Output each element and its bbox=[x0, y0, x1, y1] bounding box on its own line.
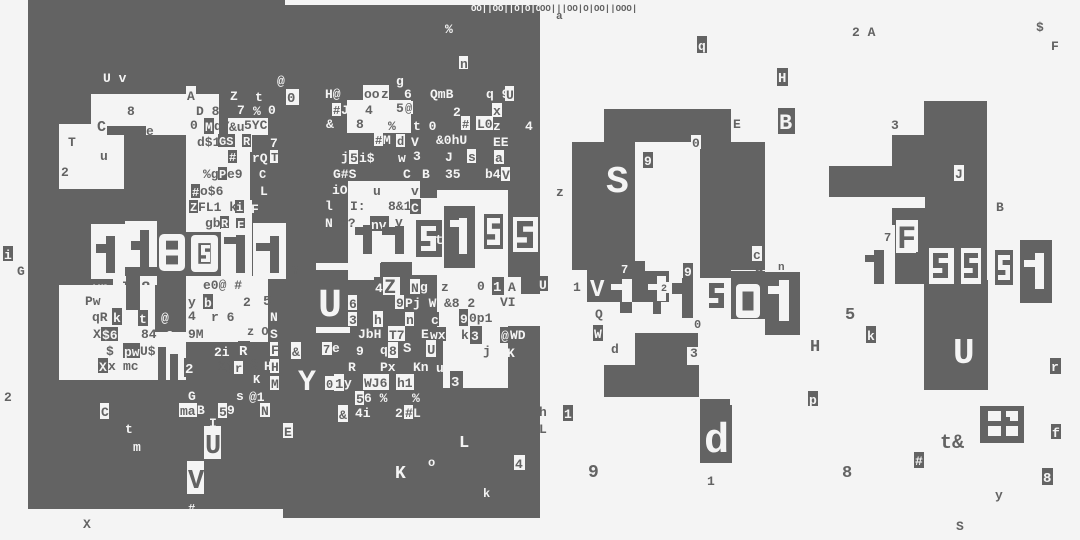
svg-text:1: 1 bbox=[707, 474, 715, 489]
svg-text:9: 9 bbox=[460, 312, 468, 327]
svg-text:B: B bbox=[996, 200, 1004, 215]
svg-text:H: H bbox=[810, 338, 820, 357]
svg-text:7: 7 bbox=[270, 136, 278, 151]
svg-text:f: f bbox=[250, 343, 258, 358]
svg-text:5: 5 bbox=[350, 151, 358, 166]
svg-text:x: x bbox=[493, 104, 501, 119]
svg-text:#: # bbox=[229, 151, 236, 165]
svg-text:H: H bbox=[778, 71, 786, 87]
svg-text:8: 8 bbox=[356, 117, 364, 132]
svg-text:9: 9 bbox=[356, 344, 364, 359]
svg-text:4: 4 bbox=[375, 281, 383, 296]
svg-text:U: U bbox=[427, 343, 435, 359]
svg-text:L: L bbox=[260, 184, 268, 199]
svg-text:v: v bbox=[411, 184, 419, 199]
svg-text:T: T bbox=[68, 135, 76, 150]
svg-text:%: % bbox=[412, 391, 420, 406]
svg-text:FL1 k: FL1 k bbox=[198, 200, 237, 215]
svg-text:@: @ bbox=[501, 329, 509, 344]
svg-text:0: 0 bbox=[190, 118, 198, 133]
svg-text:Kn: Kn bbox=[413, 360, 429, 375]
svg-text:h1: h1 bbox=[397, 376, 413, 391]
svg-text:Y: Y bbox=[298, 366, 316, 400]
svg-text:JbH: JbH bbox=[358, 327, 381, 342]
svg-text:4: 4 bbox=[515, 457, 523, 472]
svg-text:a?: a? bbox=[340, 216, 356, 231]
svg-text:5: 5 bbox=[263, 294, 271, 310]
svg-text:E: E bbox=[733, 117, 741, 132]
svg-text:8: 8 bbox=[389, 344, 397, 359]
svg-text:U: U bbox=[953, 333, 975, 374]
svg-text:&: & bbox=[292, 345, 300, 360]
svg-text:VI: VI bbox=[500, 295, 516, 310]
svg-text:S: S bbox=[270, 327, 278, 342]
svg-text:9: 9 bbox=[644, 154, 652, 169]
svg-text:2: 2 bbox=[243, 295, 251, 310]
svg-text:a: a bbox=[556, 11, 563, 23]
svg-text:@1: @1 bbox=[249, 390, 265, 405]
svg-text:&u: &u bbox=[229, 120, 245, 135]
svg-text:h: h bbox=[374, 313, 382, 328]
svg-text:oo: oo bbox=[364, 87, 380, 102]
svg-text:1: 1 bbox=[335, 377, 343, 393]
svg-text:4: 4 bbox=[525, 119, 533, 134]
svg-text:s: s bbox=[468, 150, 476, 165]
svg-text:9M: 9M bbox=[188, 327, 204, 342]
svg-text:Y: Y bbox=[292, 263, 300, 278]
svg-text:rQ: rQ bbox=[252, 151, 268, 166]
svg-text:h: h bbox=[539, 405, 547, 420]
svg-text:V: V bbox=[590, 277, 605, 304]
svg-text:Q: Q bbox=[595, 307, 603, 322]
svg-text:j: j bbox=[483, 344, 491, 359]
svg-text:z: z bbox=[381, 87, 389, 102]
svg-text:i: i bbox=[4, 248, 12, 263]
svg-text:3: 3 bbox=[451, 375, 459, 391]
svg-text:0p1: 0p1 bbox=[469, 311, 493, 326]
svg-text:E: E bbox=[421, 327, 429, 342]
svg-text:G#S: G#S bbox=[333, 167, 357, 182]
svg-text:3: 3 bbox=[471, 329, 479, 344]
svg-text:M: M bbox=[271, 377, 279, 392]
svg-text:N: N bbox=[325, 216, 333, 231]
svg-text:l: l bbox=[325, 199, 333, 214]
svg-text:U: U bbox=[539, 278, 547, 293]
svg-text:8: 8 bbox=[1043, 471, 1051, 487]
svg-text:W: W bbox=[594, 327, 602, 342]
svg-text:#: # bbox=[915, 454, 923, 469]
svg-text:V: V bbox=[502, 168, 510, 183]
svg-text:OO|||OO|O|OO||OOO|: OO|||OO|O|OO||OOO| bbox=[540, 4, 637, 14]
svg-text:r 6: r 6 bbox=[211, 310, 235, 325]
svg-text:J: J bbox=[445, 150, 453, 165]
svg-text:#: # bbox=[333, 104, 340, 118]
svg-text:N: N bbox=[411, 281, 419, 296]
svg-text:E: E bbox=[284, 425, 292, 440]
svg-text:U: U bbox=[205, 432, 221, 462]
svg-text:w: w bbox=[756, 263, 764, 277]
svg-text:%g: %g bbox=[203, 167, 219, 182]
svg-text:w: w bbox=[398, 151, 406, 166]
svg-text:#: # bbox=[188, 502, 195, 516]
svg-text:2: 2 bbox=[185, 362, 193, 378]
svg-text:pw: pw bbox=[124, 345, 140, 360]
svg-text:9: 9 bbox=[227, 403, 235, 418]
svg-text:6 %: 6 % bbox=[364, 391, 388, 406]
svg-text:5YC: 5YC bbox=[244, 118, 268, 133]
svg-text:a: a bbox=[495, 151, 503, 166]
svg-text:i$: i$ bbox=[359, 151, 375, 166]
svg-text:g: g bbox=[396, 74, 404, 89]
svg-text:X: X bbox=[83, 517, 91, 532]
svg-text:C: C bbox=[259, 168, 266, 182]
svg-text:R: R bbox=[348, 360, 356, 375]
svg-text:5: 5 bbox=[356, 392, 364, 407]
svg-text:%j: %j bbox=[218, 359, 234, 374]
svg-text:K: K bbox=[253, 373, 261, 387]
svg-text:S: S bbox=[606, 161, 629, 204]
svg-text:L: L bbox=[459, 434, 469, 453]
svg-text:S: S bbox=[956, 519, 964, 534]
svg-text:u: u bbox=[436, 361, 444, 376]
svg-text:2: 2 bbox=[61, 165, 69, 180]
svg-text:6: 6 bbox=[349, 297, 357, 312]
svg-text:V: V bbox=[411, 135, 419, 150]
svg-text:&: & bbox=[326, 117, 334, 132]
svg-text:M: M bbox=[383, 133, 391, 148]
svg-text:7: 7 bbox=[323, 343, 330, 357]
svg-text:k: k bbox=[461, 328, 469, 343]
svg-text:U v: U v bbox=[103, 71, 127, 86]
svg-text:8&1: 8&1 bbox=[388, 199, 412, 214]
svg-text:2i: 2i bbox=[214, 345, 230, 360]
svg-text:F: F bbox=[897, 221, 916, 258]
svg-text:84: 84 bbox=[141, 327, 157, 342]
svg-text:WJ6: WJ6 bbox=[364, 376, 388, 391]
svg-text:t 0: t 0 bbox=[413, 119, 437, 134]
svg-text:j W: j W bbox=[413, 296, 437, 311]
svg-text:QmB: QmB bbox=[430, 87, 454, 102]
svg-text:7: 7 bbox=[884, 231, 891, 245]
svg-text:9: 9 bbox=[588, 463, 599, 483]
svg-text:5: 5 bbox=[845, 306, 855, 325]
svg-text:e: e bbox=[146, 124, 154, 139]
svg-text:p: p bbox=[809, 393, 817, 408]
svg-text:T: T bbox=[271, 151, 278, 165]
svg-text:Z: Z bbox=[190, 201, 197, 215]
svg-text:mc: mc bbox=[123, 359, 139, 374]
svg-text:U$: U$ bbox=[140, 344, 156, 359]
svg-text:#: # bbox=[462, 118, 469, 132]
svg-text:0: 0 bbox=[326, 378, 333, 392]
svg-text:qR: qR bbox=[92, 310, 108, 325]
svg-text:n: n bbox=[460, 57, 468, 72]
svg-text:K: K bbox=[395, 464, 406, 484]
svg-text:%: % bbox=[388, 119, 396, 134]
svg-text:D 8: D 8 bbox=[196, 104, 220, 119]
svg-text:t&: t& bbox=[940, 432, 964, 455]
svg-text:r: r bbox=[235, 362, 242, 376]
svg-text:&0hU: &0hU bbox=[436, 133, 467, 148]
svg-text:F: F bbox=[1051, 39, 1059, 54]
svg-text:X: X bbox=[99, 360, 107, 375]
svg-text:q: q bbox=[380, 343, 388, 358]
svg-text:OO||OO||O|O|OO: OO||OO||O|O|OO bbox=[471, 4, 547, 14]
svg-text:gb: gb bbox=[205, 216, 221, 231]
svg-text:k: k bbox=[867, 329, 875, 344]
svg-text:5: 5 bbox=[219, 405, 227, 420]
svg-text:0: 0 bbox=[287, 91, 295, 107]
svg-text:8: 8 bbox=[842, 464, 852, 483]
svg-text:L: L bbox=[539, 422, 547, 437]
svg-text:2 A: 2 A bbox=[852, 25, 876, 40]
svg-text:P: P bbox=[219, 168, 226, 182]
svg-text:m: m bbox=[133, 440, 141, 455]
svg-text:M: M bbox=[205, 120, 213, 135]
svg-text:@: @ bbox=[277, 74, 285, 89]
svg-text:ma: ma bbox=[180, 404, 196, 419]
svg-text:B: B bbox=[779, 111, 792, 136]
svg-text:0: 0 bbox=[477, 279, 485, 294]
svg-text:z: z bbox=[493, 119, 501, 134]
svg-text:J: J bbox=[341, 103, 349, 118]
svg-text:A: A bbox=[508, 280, 516, 295]
svg-text:u: u bbox=[100, 149, 108, 164]
svg-text:J: J bbox=[955, 167, 963, 182]
svg-text:3: 3 bbox=[891, 118, 899, 133]
svg-text:C: C bbox=[101, 405, 109, 420]
svg-text:WD: WD bbox=[510, 328, 526, 343]
svg-text:0: 0 bbox=[694, 318, 701, 332]
svg-text:dY: dY bbox=[214, 119, 230, 134]
svg-text:%: % bbox=[445, 22, 453, 37]
svg-text:#: # bbox=[405, 406, 413, 421]
svg-text:$6: $6 bbox=[102, 328, 118, 343]
svg-text:o: o bbox=[428, 456, 435, 470]
svg-text:U: U bbox=[506, 88, 514, 103]
svg-text:N: N bbox=[261, 404, 269, 419]
svg-text:d: d bbox=[704, 417, 729, 465]
svg-text:n: n bbox=[406, 313, 414, 328]
svg-text:r: r bbox=[1051, 360, 1059, 375]
svg-text:Z: Z bbox=[384, 277, 396, 300]
svg-text:K: K bbox=[507, 346, 515, 361]
svg-text:3: 3 bbox=[413, 149, 421, 164]
svg-text:G: G bbox=[17, 264, 25, 279]
svg-text:0: 0 bbox=[268, 103, 276, 118]
svg-text:b: b bbox=[204, 296, 212, 311]
svg-text:2: 2 bbox=[661, 284, 667, 295]
svg-text:f: f bbox=[1052, 426, 1060, 441]
svg-text:e: e bbox=[332, 341, 340, 356]
svg-text:4: 4 bbox=[365, 103, 373, 118]
svg-text:Z: Z bbox=[230, 89, 238, 104]
svg-text:3: 3 bbox=[349, 313, 357, 328]
svg-text:o$6: o$6 bbox=[200, 184, 224, 199]
svg-text:k: k bbox=[483, 487, 490, 501]
svg-text:F: F bbox=[251, 202, 259, 217]
svg-text:y: y bbox=[995, 488, 1003, 503]
svg-text:8: 8 bbox=[127, 104, 135, 119]
svg-text:GS: GS bbox=[219, 135, 233, 149]
svg-text:V: V bbox=[188, 467, 205, 497]
svg-text:7: 7 bbox=[621, 263, 628, 277]
svg-text:t: t bbox=[139, 312, 147, 327]
svg-text:EE: EE bbox=[493, 135, 509, 150]
svg-text:q: q bbox=[698, 39, 706, 54]
svg-text:@: @ bbox=[161, 311, 169, 326]
svg-text:i: i bbox=[236, 201, 243, 215]
svg-text:g: g bbox=[420, 280, 428, 295]
svg-text:S: S bbox=[403, 341, 411, 357]
svg-text:4: 4 bbox=[188, 309, 196, 324]
svg-text:k: k bbox=[113, 311, 121, 326]
svg-text:$: $ bbox=[106, 344, 114, 359]
svg-text:&8 2: &8 2 bbox=[444, 296, 475, 311]
svg-text:9: 9 bbox=[396, 296, 404, 311]
svg-text:t: t bbox=[255, 90, 263, 105]
svg-text:z: z bbox=[441, 280, 449, 295]
svg-text:3: 3 bbox=[690, 346, 698, 361]
svg-text:H@: H@ bbox=[325, 87, 341, 102]
svg-text:H: H bbox=[271, 360, 279, 375]
svg-text:0: 0 bbox=[692, 136, 700, 151]
svg-text:j: j bbox=[341, 150, 349, 165]
svg-text:&: & bbox=[339, 408, 347, 423]
svg-text:$: $ bbox=[1036, 20, 1044, 35]
svg-text:a: a bbox=[166, 327, 174, 342]
svg-text:y: y bbox=[344, 376, 352, 391]
svg-text:1: 1 bbox=[493, 280, 501, 296]
svg-text:#: # bbox=[375, 134, 382, 148]
svg-text:7: 7 bbox=[237, 103, 245, 118]
svg-text:t: t bbox=[125, 422, 133, 437]
svg-text:%: % bbox=[253, 104, 261, 119]
svg-text:2: 2 bbox=[453, 105, 461, 120]
svg-text:d: d bbox=[611, 342, 619, 357]
svg-text:y: y bbox=[188, 295, 196, 310]
svg-text:L: L bbox=[413, 406, 421, 421]
svg-text:9: 9 bbox=[684, 265, 692, 280]
svg-text:s: s bbox=[236, 389, 244, 404]
svg-text:Px: Px bbox=[380, 360, 396, 375]
svg-text:e0@ #: e0@ # bbox=[203, 278, 242, 293]
svg-text:B: B bbox=[422, 167, 430, 182]
svg-text:N: N bbox=[270, 310, 278, 325]
svg-text:B: B bbox=[197, 403, 205, 418]
svg-text:A: A bbox=[187, 89, 195, 104]
svg-text:C: C bbox=[411, 201, 419, 216]
svg-text:b4: b4 bbox=[485, 167, 501, 182]
svg-text:X: X bbox=[93, 327, 101, 342]
svg-text:t: t bbox=[435, 233, 443, 249]
svg-text:x: x bbox=[108, 359, 116, 374]
svg-text:2: 2 bbox=[4, 390, 12, 405]
svg-text:#: # bbox=[192, 186, 199, 200]
svg-text:R: R bbox=[243, 135, 251, 149]
svg-text:d: d bbox=[397, 135, 404, 149]
svg-text:1: 1 bbox=[573, 280, 581, 295]
svg-text:n: n bbox=[778, 262, 785, 274]
svg-text:@: @ bbox=[405, 102, 412, 116]
svg-text:5: 5 bbox=[396, 101, 404, 116]
svg-text:G: G bbox=[188, 389, 196, 404]
svg-text:35: 35 bbox=[445, 167, 461, 182]
svg-text:2: 2 bbox=[395, 406, 403, 421]
svg-text:c: c bbox=[753, 248, 761, 263]
svg-text:R: R bbox=[239, 344, 248, 360]
svg-text:z: z bbox=[556, 185, 564, 200]
svg-text:Pw: Pw bbox=[85, 294, 101, 309]
svg-text:C: C bbox=[403, 167, 411, 182]
svg-text:F: F bbox=[271, 343, 279, 358]
svg-text:d$1: d$1 bbox=[197, 135, 221, 150]
svg-text:U: U bbox=[318, 284, 342, 329]
svg-text:u: u bbox=[373, 184, 381, 199]
svg-text:e9: e9 bbox=[227, 167, 243, 182]
svg-text:P: P bbox=[405, 296, 413, 311]
svg-text:1: 1 bbox=[564, 407, 572, 422]
svg-text:I:: I: bbox=[350, 199, 366, 214]
svg-text:6: 6 bbox=[404, 87, 412, 102]
svg-text:4i: 4i bbox=[355, 406, 371, 421]
svg-text:c: c bbox=[431, 313, 439, 328]
svg-text:C: C bbox=[97, 119, 106, 136]
svg-text:iO: iO bbox=[332, 183, 348, 198]
svg-text:L0: L0 bbox=[477, 117, 493, 132]
